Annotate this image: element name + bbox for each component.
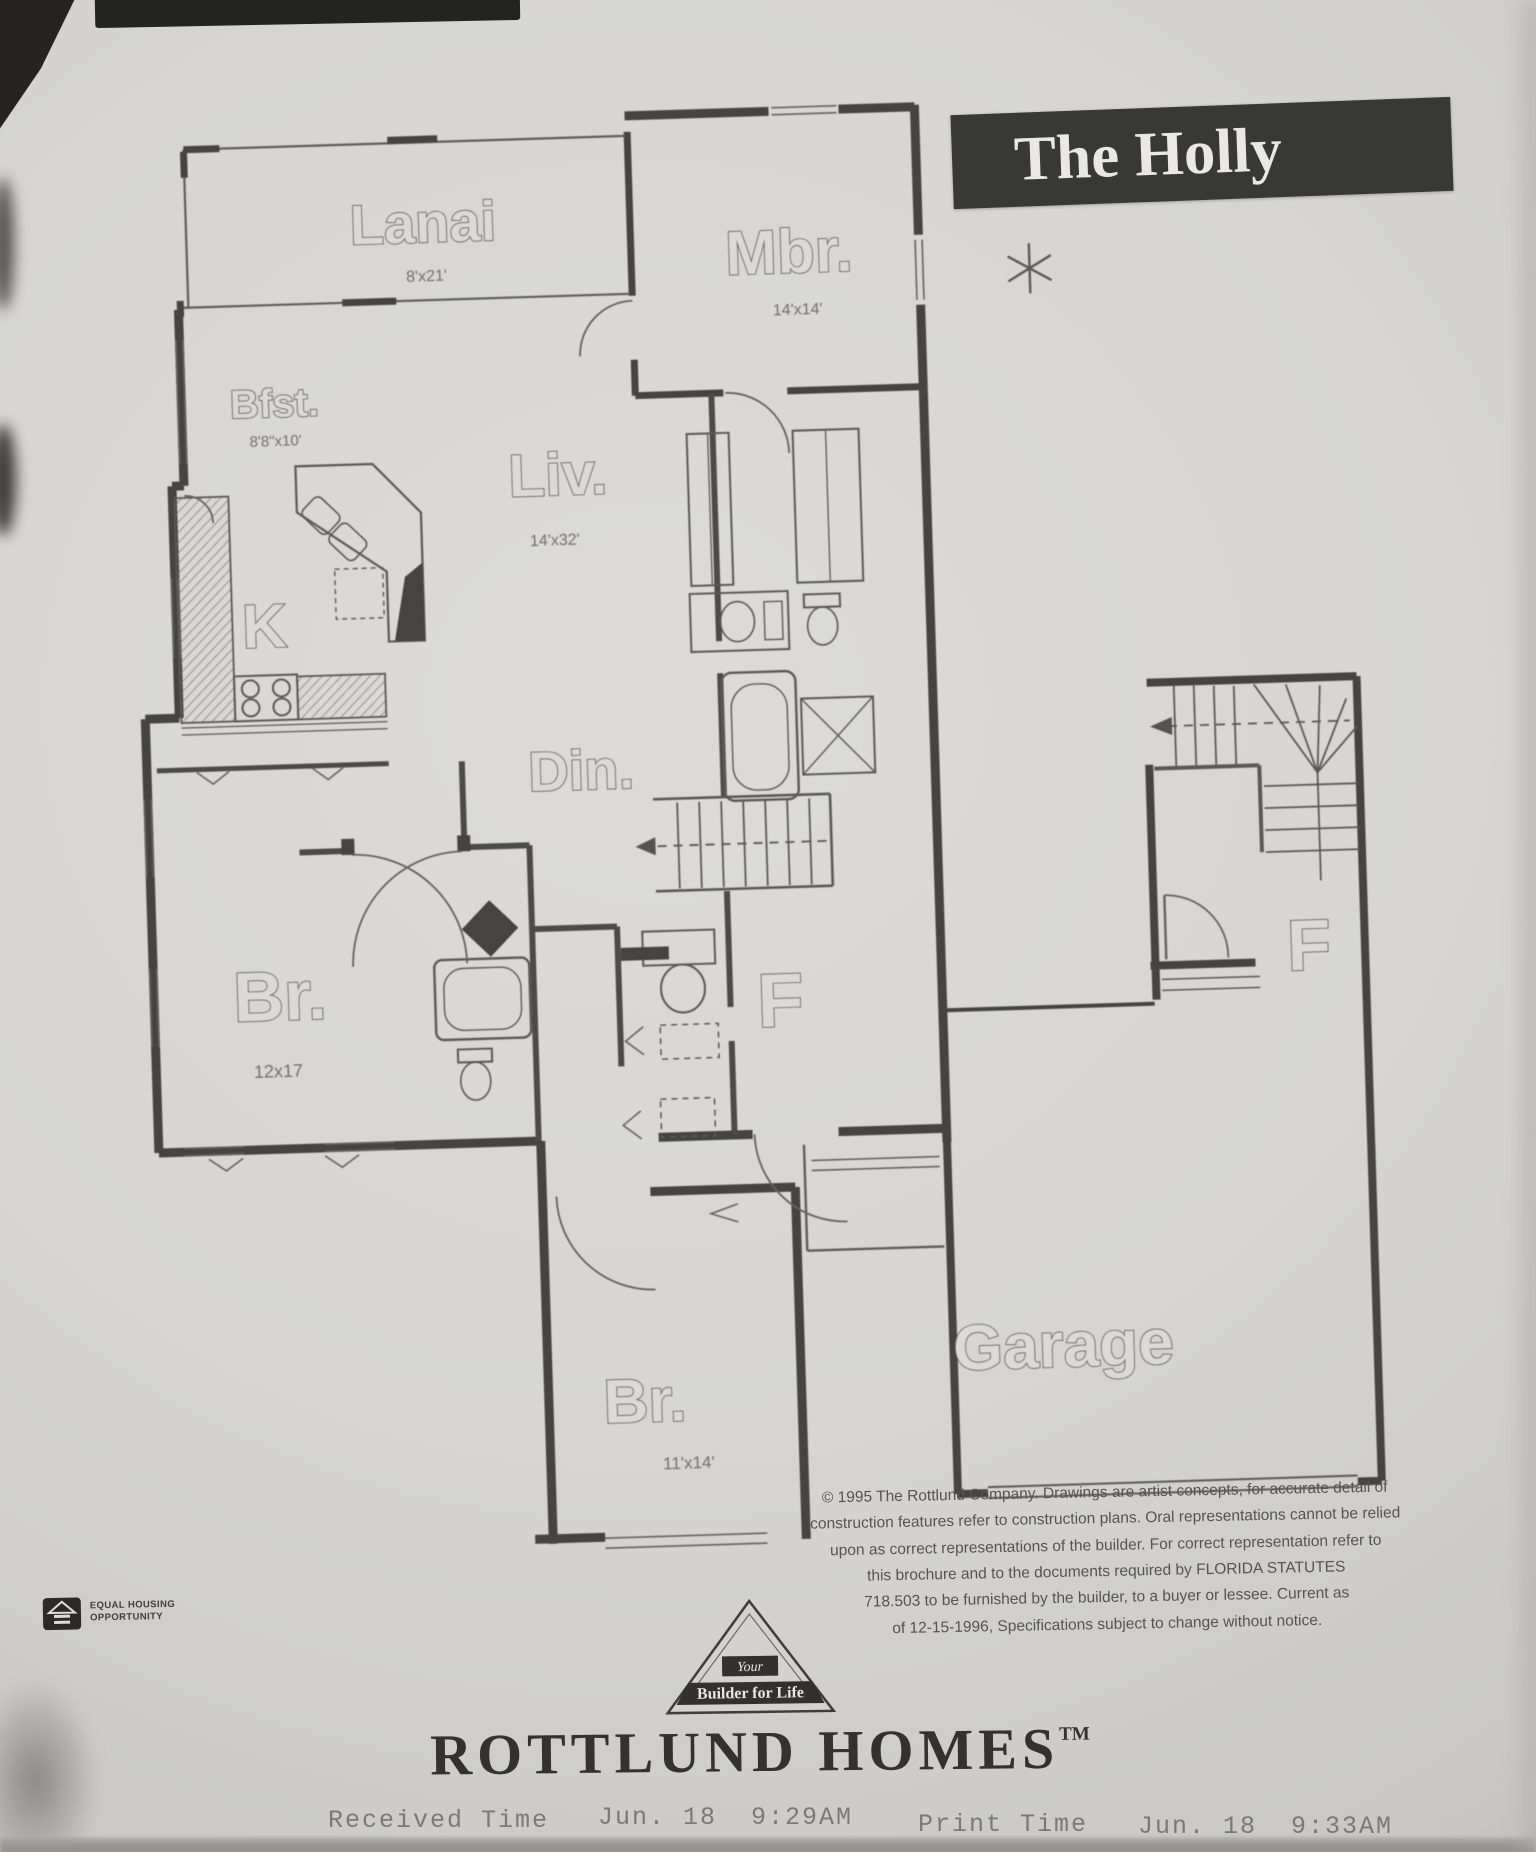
fax-footer: Received Time Jun. 18 9:29AM Print Time …	[0, 0, 1536, 1852]
scanned-floorplan-photo: Lanai 8'x21' Mbr. 14'x14' Bfst. 8'8"x10'…	[0, 0, 1536, 1852]
corner-shadow	[0, 1675, 100, 1852]
right-edge-shade	[1522, 0, 1536, 1852]
fax-received-value: Jun. 18 9:29AM	[598, 1803, 853, 1832]
fax-print-label: Print Time	[918, 1810, 1088, 1839]
fax-received-label: Received Time	[328, 1806, 549, 1835]
bottom-shadow-band	[0, 1838, 1536, 1852]
fax-print-value: Jun. 18 9:33AM	[1138, 1812, 1393, 1841]
